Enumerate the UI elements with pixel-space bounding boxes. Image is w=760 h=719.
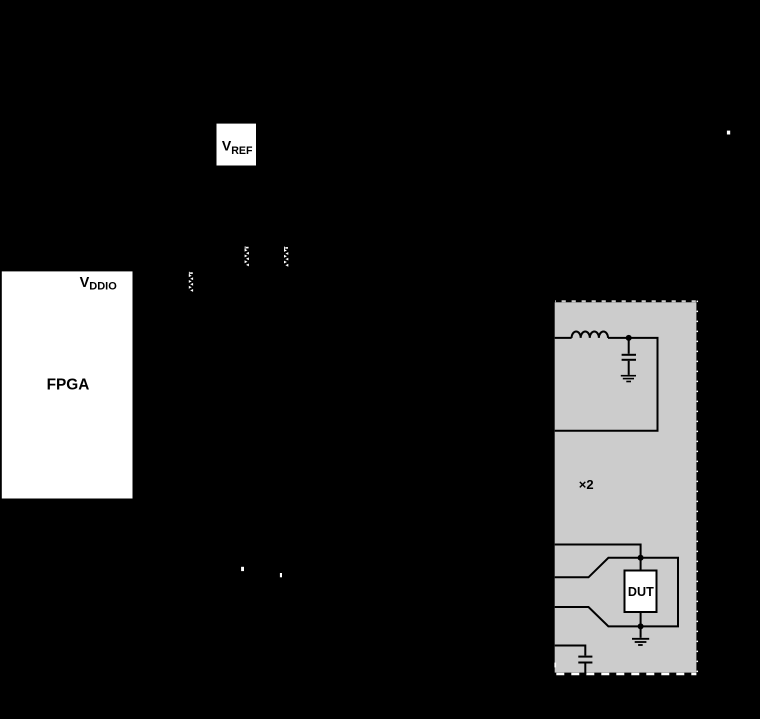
svg-text:FPGA: FPGA [47,376,90,393]
svg-text:DUT: DUT [628,585,654,599]
svg-text:×2: ×2 [579,477,594,492]
